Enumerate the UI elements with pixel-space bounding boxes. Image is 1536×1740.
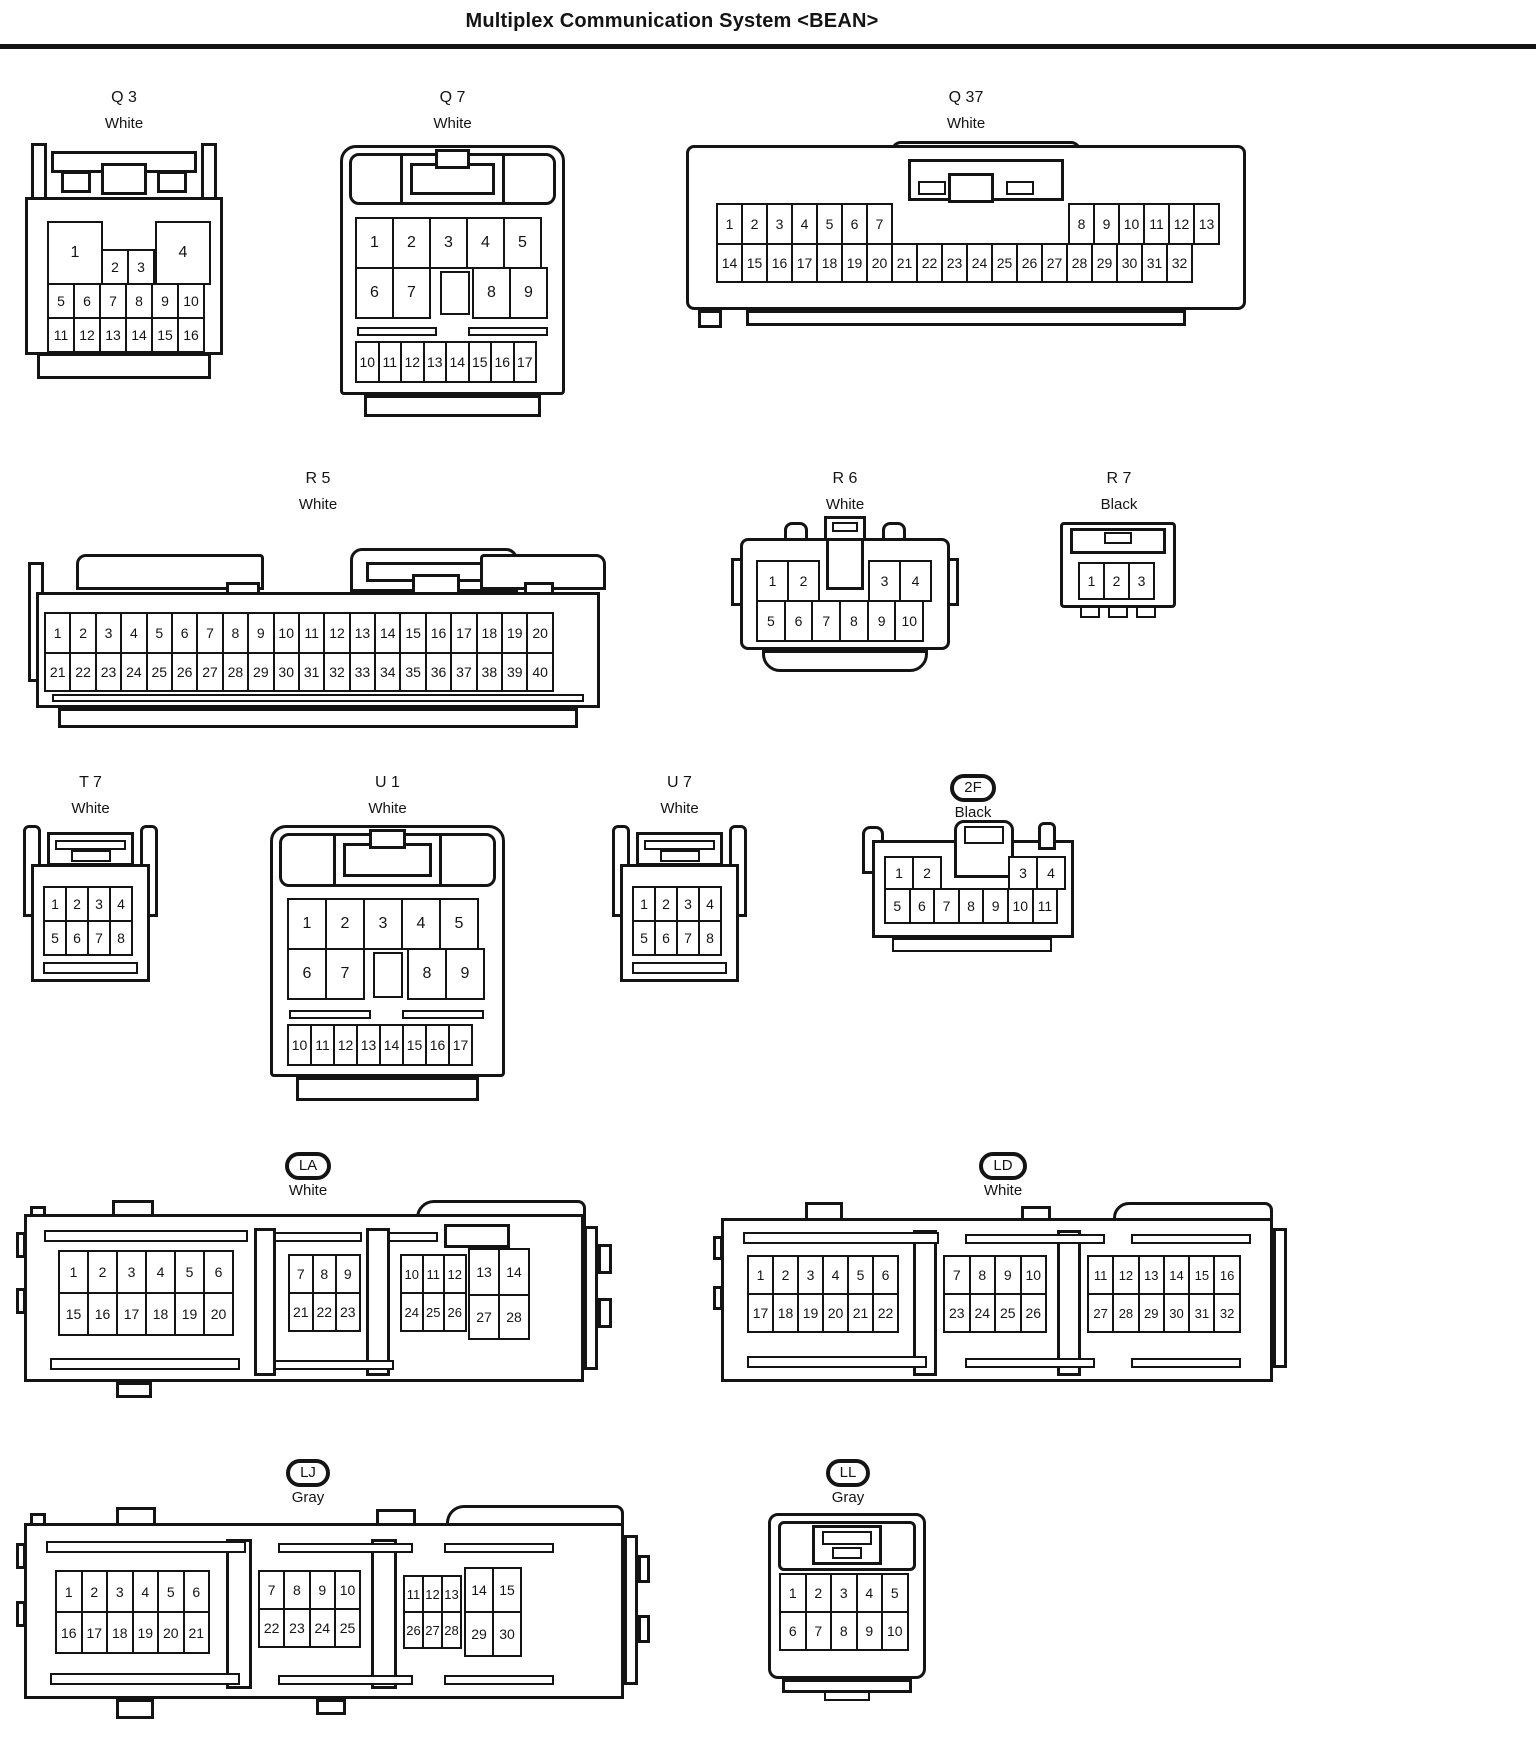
pin-11: 11 [310, 1024, 335, 1066]
connector-label: R 5 [28, 470, 608, 488]
pin-3: 3 [106, 1570, 134, 1613]
inner-bar [468, 327, 548, 336]
foot-tab [116, 1382, 152, 1398]
pin-10: 10 [334, 1570, 361, 1610]
pin-3: 3 [87, 886, 111, 922]
pin-1: 1 [716, 203, 743, 245]
connector-label: Q 7 [340, 89, 565, 107]
bottom-bar [965, 1358, 1095, 1368]
connector-oval-label: 2F [950, 774, 996, 802]
pin-14: 14 [379, 1024, 404, 1066]
latch-center [1104, 532, 1132, 544]
pin-grid: 2122232425262728293031323334353637383940 [44, 652, 552, 692]
pin-3: 3 [363, 898, 403, 950]
pin-11: 11 [1143, 203, 1170, 245]
bottom-bar [1131, 1358, 1241, 1368]
pin-9: 9 [309, 1570, 336, 1610]
pin-14: 14 [464, 1567, 494, 1613]
foot-tab [698, 310, 722, 328]
pin-9: 9 [982, 888, 1009, 924]
pin-10: 10 [881, 1611, 909, 1651]
pin-13: 13 [468, 1248, 500, 1296]
connector-color: White [28, 496, 608, 514]
pin-1: 1 [747, 1255, 774, 1295]
left-notch [713, 1236, 723, 1260]
pin-2: 2 [912, 856, 942, 890]
pin-29: 29 [1091, 243, 1118, 283]
pin-15: 15 [58, 1292, 89, 1336]
pin-6: 6 [287, 948, 327, 1000]
connector-oval-label: LJ [286, 1459, 330, 1487]
inner-bar [402, 1010, 484, 1019]
pin-20: 20 [866, 243, 893, 283]
right-cap [624, 1535, 638, 1685]
latch-center [948, 173, 994, 203]
pin-7: 7 [943, 1255, 971, 1295]
pin-grid: 2930 [464, 1611, 520, 1657]
pin-26: 26 [443, 1292, 467, 1332]
pin-8: 8 [839, 600, 869, 642]
pin-19: 19 [174, 1292, 205, 1336]
bottom-bar [747, 1356, 927, 1368]
pin-2: 2 [65, 886, 89, 922]
pin-30: 30 [1116, 243, 1143, 283]
pin-4: 4 [698, 886, 722, 922]
connector-t7: T 7 White 1234 5678 [23, 770, 158, 990]
pin-4: 4 [109, 886, 133, 922]
connector-u1: U 1 White 12345 67 89 1011121314151617 [270, 770, 505, 1110]
group-divider [254, 1228, 276, 1376]
pin-7: 7 [325, 948, 365, 1000]
pin-7: 7 [196, 612, 223, 654]
pin-10: 10 [177, 283, 205, 319]
pin-20: 20 [822, 1293, 849, 1333]
pin-28: 28 [441, 1611, 462, 1649]
inner-bar [1131, 1234, 1251, 1244]
connector-oval-label: LA [285, 1152, 331, 1180]
left-notch [16, 1543, 26, 1569]
pin-grid: 123456 [58, 1250, 232, 1294]
pin-11: 11 [298, 612, 325, 654]
connector-label: Q 3 [25, 89, 223, 107]
pin-3: 3 [95, 612, 122, 654]
pin-8: 8 [698, 920, 722, 956]
pin-18: 18 [145, 1292, 176, 1336]
pin-grid: 12 [756, 560, 818, 602]
pin-32: 32 [1166, 243, 1193, 283]
inner-bar [444, 1543, 554, 1553]
bottom-bar [278, 1675, 413, 1685]
pin-3: 3 [830, 1573, 858, 1613]
connector-q3: Q 3 White 1 23 4 5678910 111213141516 [25, 85, 223, 385]
pin-17: 17 [116, 1292, 147, 1336]
pin-grid: 1234 [43, 886, 131, 922]
pin-4: 4 [155, 221, 211, 285]
pin-grid: 1234 [632, 886, 720, 922]
pin-grid: 78910 [258, 1570, 359, 1610]
pin-grid: 1 [47, 221, 101, 285]
pin-12: 12 [73, 317, 101, 353]
pin-16: 16 [55, 1611, 83, 1654]
pin-29: 29 [464, 1611, 494, 1657]
latch-tab [369, 829, 406, 849]
pin-6: 6 [909, 888, 936, 924]
connector-label: R 7 [1058, 470, 1180, 488]
pin-32: 32 [323, 652, 350, 692]
pin-26: 26 [1016, 243, 1043, 283]
pin-11: 11 [1087, 1255, 1114, 1295]
pin-grid: 5678 [632, 920, 720, 956]
connector-color: White [612, 800, 747, 818]
latch-center [101, 163, 147, 195]
pin-8: 8 [125, 283, 153, 319]
page-title: Multiplex Communication System <BEAN> [0, 10, 1344, 33]
pin-11: 11 [1032, 888, 1059, 924]
connector-label: T 7 [23, 774, 158, 792]
pin-6: 6 [355, 267, 394, 319]
connector-label: U 1 [270, 774, 505, 792]
pin-10: 10 [355, 341, 380, 383]
pin-3: 3 [429, 217, 468, 269]
foot-tooth [1108, 606, 1128, 618]
pin-4: 4 [822, 1255, 849, 1295]
pin-2: 2 [392, 217, 431, 269]
pin-36: 36 [425, 652, 452, 692]
pin-5: 5 [174, 1250, 205, 1294]
pin-24: 24 [969, 1293, 997, 1333]
pin-23: 23 [95, 652, 122, 692]
pin-grid: 4 [155, 221, 209, 285]
pin-4: 4 [401, 898, 441, 950]
pin-3: 3 [1128, 562, 1155, 600]
pin-7: 7 [87, 920, 111, 956]
pin-15: 15 [492, 1567, 522, 1613]
pin-1: 1 [355, 217, 394, 269]
pin-21: 21 [44, 652, 71, 692]
pin-28: 28 [222, 652, 249, 692]
connector-foot [746, 310, 1186, 326]
pin-19: 19 [797, 1293, 824, 1333]
foot-tab [824, 1691, 870, 1701]
pin-28: 28 [1112, 1293, 1139, 1333]
pin-11: 11 [403, 1575, 424, 1613]
pin-19: 19 [132, 1611, 160, 1654]
pin-6: 6 [183, 1570, 211, 1613]
pin-28: 28 [498, 1294, 530, 1340]
pin-16: 16 [87, 1292, 118, 1336]
inner-bar [52, 694, 584, 702]
pin-3: 3 [127, 249, 155, 285]
pin-11: 11 [422, 1254, 446, 1294]
pin-6: 6 [872, 1255, 899, 1295]
pin-grid: 89 [472, 267, 546, 319]
pin-24: 24 [400, 1292, 424, 1332]
pin-17: 17 [791, 243, 818, 283]
pin-grid: 789 [288, 1254, 359, 1294]
pin-grid: 5678910 [47, 283, 203, 319]
pin-grid: 34 [1008, 856, 1064, 890]
pin-2: 2 [787, 560, 820, 602]
pin-8: 8 [222, 612, 249, 654]
pin-2: 2 [81, 1570, 109, 1613]
latch-tab [435, 149, 470, 169]
pin-10: 10 [1020, 1255, 1048, 1295]
right-tab [598, 1298, 612, 1328]
pin-14: 14 [1163, 1255, 1190, 1295]
pin-5: 5 [847, 1255, 874, 1295]
pin-16: 16 [425, 612, 452, 654]
pin-6: 6 [654, 920, 678, 956]
pin-32: 32 [1213, 1293, 1240, 1333]
pin-grid: 22232425 [258, 1608, 359, 1648]
pin-13: 13 [1138, 1255, 1165, 1295]
foot-tooth [1080, 606, 1100, 618]
pin-10: 10 [400, 1254, 424, 1294]
bottom-bar [50, 1673, 240, 1685]
pin-1: 1 [47, 221, 103, 285]
pin-4: 4 [466, 217, 505, 269]
pin-3: 3 [797, 1255, 824, 1295]
pin-40: 40 [526, 652, 553, 692]
pin-18: 18 [816, 243, 843, 283]
pin-grid: 171819202122 [747, 1293, 897, 1333]
bottom-bar [274, 1360, 394, 1370]
pin-22: 22 [69, 652, 96, 692]
pin-20: 20 [526, 612, 553, 654]
connector-foot [364, 395, 541, 417]
pin-9: 9 [151, 283, 179, 319]
pin-27: 27 [468, 1294, 500, 1340]
pin-8: 8 [830, 1611, 858, 1651]
unnumbered-cavity [373, 952, 403, 998]
pin-16: 16 [766, 243, 793, 283]
pin-14: 14 [374, 612, 401, 654]
connector-color: Gray [768, 1489, 928, 1507]
latch-center [832, 1547, 862, 1559]
pin-grid: 161718192021 [55, 1611, 208, 1654]
pin-grid: 23 [101, 249, 153, 285]
connector-color: Black [1058, 496, 1180, 514]
pin-2: 2 [101, 249, 129, 285]
pin-34: 34 [374, 652, 401, 692]
pin-grid: 1011121314151617 [355, 341, 535, 383]
pin-15: 15 [151, 317, 179, 353]
pin-4: 4 [856, 1573, 884, 1613]
pin-33: 33 [349, 652, 376, 692]
pin-17: 17 [448, 1024, 473, 1066]
pin-grid: 101112 [400, 1254, 465, 1294]
inner-bar [274, 1232, 362, 1242]
pin-31: 31 [1141, 243, 1168, 283]
pin-1: 1 [287, 898, 327, 950]
pin-grid: 23242526 [943, 1293, 1045, 1333]
pin-1: 1 [884, 856, 914, 890]
connector-ld: LD White 123456 171819202122 78910 23242… [713, 1148, 1293, 1400]
pin-9: 9 [335, 1254, 361, 1294]
pin-2: 2 [805, 1573, 833, 1613]
pin-15: 15 [402, 1024, 427, 1066]
pin-grid: 151617181920 [58, 1292, 232, 1336]
latch-center [71, 850, 111, 862]
right-tab [638, 1615, 650, 1643]
pin-6: 6 [171, 612, 198, 654]
pin-6: 6 [65, 920, 89, 956]
pin-1: 1 [55, 1570, 83, 1613]
pin-3: 3 [868, 560, 901, 602]
inner-bar [278, 1543, 413, 1553]
pin-5: 5 [439, 898, 479, 950]
connector-ll: LL Gray 12345 678910 [768, 1455, 928, 1710]
pin-9: 9 [1093, 203, 1120, 245]
left-notch [16, 1288, 26, 1314]
pin-5: 5 [43, 920, 67, 956]
pin-13: 13 [1193, 203, 1220, 245]
pin-grid: 1011121314151617 [287, 1024, 471, 1066]
pin-grid: 78910 [943, 1255, 1045, 1295]
pin-9: 9 [994, 1255, 1022, 1295]
pin-1: 1 [43, 886, 67, 922]
pin-16: 16 [425, 1024, 450, 1066]
connector-oval-label: LD [979, 1152, 1026, 1180]
pin-13: 13 [441, 1575, 462, 1613]
right-tab [598, 1244, 612, 1274]
latch-center [660, 850, 700, 862]
pin-29: 29 [247, 652, 274, 692]
latch-bar [55, 840, 126, 850]
pin-grid: 111213 [403, 1575, 460, 1613]
pin-grid: 12345 [355, 217, 540, 269]
pin-2: 2 [1103, 562, 1130, 600]
pin-grid: 5678 [43, 920, 131, 956]
pin-5: 5 [146, 612, 173, 654]
connector-la: LA White 123456 151617181920 789 212223 … [16, 1148, 616, 1400]
connector-q7: Q 7 White 12345 67 89 1011121314151617 [340, 85, 565, 420]
latch-detail-right [157, 171, 187, 193]
pin-16: 16 [177, 317, 205, 353]
connector-label: U 7 [612, 774, 747, 792]
pin-1: 1 [779, 1573, 807, 1613]
pin-grid: 5678910 [756, 600, 922, 642]
latch-bar [822, 1531, 872, 1545]
pin-1: 1 [632, 886, 656, 922]
inner-bar [357, 327, 437, 336]
connector-color: White [25, 115, 223, 133]
bottom-bar [444, 1675, 554, 1685]
pin-15: 15 [399, 612, 426, 654]
pin-2: 2 [772, 1255, 799, 1295]
pin-grid: 1234567 [716, 203, 891, 245]
pin-13: 13 [423, 341, 448, 383]
group-divider [371, 1539, 397, 1689]
inner-bar [632, 962, 727, 974]
inner-bar [46, 1541, 246, 1553]
pin-2: 2 [654, 886, 678, 922]
latch-channel [826, 538, 864, 590]
pin-17: 17 [81, 1611, 109, 1654]
pin-2: 2 [325, 898, 365, 950]
pin-8: 8 [283, 1570, 310, 1610]
pin-25: 25 [422, 1292, 446, 1332]
pin-7: 7 [866, 203, 893, 245]
left-notch [16, 1601, 26, 1627]
group-divider [1057, 1230, 1081, 1376]
pin-28: 28 [1066, 243, 1093, 283]
connector-lj: LJ Gray 123456 161718192021 78910 222324… [16, 1455, 656, 1740]
connector-r6: R 6 White 12 34 5678910 [740, 466, 950, 681]
pin-14: 14 [125, 317, 153, 353]
connector-label: R 6 [740, 470, 950, 488]
pin-1: 1 [58, 1250, 89, 1294]
pin-grid: 123456 [55, 1570, 208, 1613]
pin-7: 7 [805, 1611, 833, 1651]
connector-label: 2F [862, 774, 1084, 802]
pin-23: 23 [941, 243, 968, 283]
pin-17: 17 [747, 1293, 774, 1333]
right-cap [584, 1226, 598, 1370]
pin-grid: 242526 [400, 1292, 465, 1332]
connector-foot [296, 1077, 479, 1101]
pin-5: 5 [881, 1573, 909, 1613]
pin-grid: 1415 [464, 1567, 520, 1613]
pin-17: 17 [450, 612, 477, 654]
pin-13: 13 [99, 317, 127, 353]
pin-2: 2 [741, 203, 768, 245]
connector-foot [58, 708, 578, 728]
inner-bar [289, 1010, 371, 1019]
pin-18: 18 [106, 1611, 134, 1654]
right-cap [1273, 1228, 1287, 1368]
pin-18: 18 [476, 612, 503, 654]
pin-15: 15 [741, 243, 768, 283]
pin-39: 39 [501, 652, 528, 692]
group-divider [913, 1230, 937, 1376]
pin-29: 29 [1138, 1293, 1165, 1333]
connector-foot [762, 650, 928, 672]
pin-9: 9 [445, 948, 485, 1000]
connector-label: LL [768, 1459, 928, 1487]
pin-8: 8 [969, 1255, 997, 1295]
pin-3: 3 [766, 203, 793, 245]
pin-grid: 272829303132 [1087, 1293, 1239, 1333]
pin-1: 1 [756, 560, 789, 602]
pin-30: 30 [273, 652, 300, 692]
pin-26: 26 [1020, 1293, 1048, 1333]
pin-3: 3 [676, 886, 700, 922]
pin-23: 23 [943, 1293, 971, 1333]
ear-right [1038, 822, 1056, 850]
pin-8: 8 [958, 888, 985, 924]
pin-21: 21 [891, 243, 918, 283]
pin-24: 24 [309, 1608, 336, 1648]
connector-color: White [713, 1182, 1293, 1200]
pin-17: 17 [513, 341, 538, 383]
pin-4: 4 [1036, 856, 1066, 890]
pin-7: 7 [258, 1570, 285, 1610]
pin-2: 2 [69, 612, 96, 654]
pin-19: 19 [501, 612, 528, 654]
pin-13: 13 [356, 1024, 381, 1066]
connector-oval-label: LL [826, 1459, 871, 1487]
pin-8: 8 [312, 1254, 338, 1294]
top-block [444, 1224, 510, 1248]
pin-9: 9 [867, 600, 897, 642]
connector-label: LJ [16, 1459, 600, 1487]
unnumbered-cavity [440, 271, 470, 315]
pin-grid: 67 [287, 948, 363, 1000]
pin-4: 4 [791, 203, 818, 245]
pin-6: 6 [73, 283, 101, 319]
pin-1: 1 [1078, 562, 1105, 600]
